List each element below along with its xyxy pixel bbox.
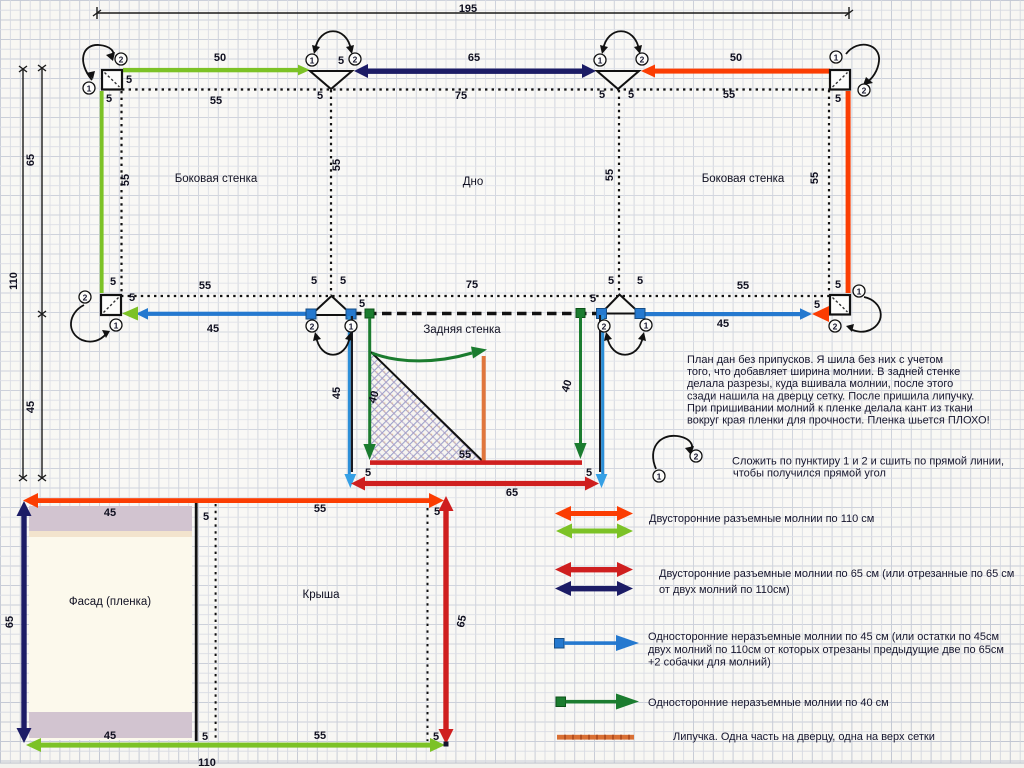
svg-text:65: 65 — [4, 616, 16, 628]
svg-text:5: 5 — [338, 55, 344, 67]
svg-text:5: 5 — [434, 506, 440, 518]
svg-text:2: 2 — [310, 322, 315, 332]
svg-text:делала разрезы, куда вшивала м: делала разрезы, куда вшивала молнии, пос… — [687, 378, 953, 390]
svg-text:План дан без припусков. Я шила: План дан без припусков. Я шила без них с… — [687, 354, 943, 366]
svg-text:55: 55 — [459, 449, 471, 461]
svg-text:двух молний по 110см от которы: двух молний по 110см от которых отрезаны… — [648, 644, 1004, 656]
svg-text:Крыша: Крыша — [303, 589, 341, 601]
svg-text:55: 55 — [314, 730, 326, 742]
svg-text:2: 2 — [862, 86, 867, 96]
svg-text:55: 55 — [199, 280, 211, 292]
svg-text:65: 65 — [455, 614, 469, 628]
svg-text:2: 2 — [833, 322, 838, 332]
svg-text:1: 1 — [349, 322, 354, 332]
svg-text:5: 5 — [599, 89, 605, 101]
svg-text:2: 2 — [119, 55, 124, 65]
svg-text:5: 5 — [608, 275, 614, 287]
svg-text:45: 45 — [104, 730, 116, 742]
svg-text:55: 55 — [809, 172, 821, 184]
svg-text:75: 75 — [466, 279, 478, 291]
svg-text:2: 2 — [353, 55, 358, 65]
svg-text:55: 55 — [210, 95, 222, 107]
svg-text:Фасад (пленка): Фасад (пленка) — [69, 596, 151, 608]
svg-text:2: 2 — [83, 293, 88, 303]
svg-text:Липучка. Одна часть на дверцу,: Липучка. Одна часть на дверцу, одна на в… — [673, 731, 935, 743]
svg-text:Боковая стенка: Боковая стенка — [702, 173, 785, 185]
svg-text:5: 5 — [835, 93, 841, 105]
svg-text:1: 1 — [857, 287, 862, 297]
svg-text:1: 1 — [644, 321, 649, 331]
svg-text:5: 5 — [317, 90, 323, 102]
svg-text:1: 1 — [657, 472, 662, 482]
svg-text:45: 45 — [717, 318, 729, 330]
svg-text:65: 65 — [468, 52, 480, 64]
svg-text:110: 110 — [8, 272, 20, 290]
svg-text:5: 5 — [340, 275, 346, 287]
svg-text:65: 65 — [506, 487, 518, 499]
svg-text:50: 50 — [214, 52, 226, 64]
svg-text:Двусторонние разъемные молнии: Двусторонние разъемные молнии по 110 см — [649, 513, 874, 525]
svg-text:45: 45 — [25, 401, 37, 413]
svg-text:5: 5 — [628, 89, 634, 101]
svg-text:55: 55 — [314, 503, 326, 515]
svg-text:2: 2 — [602, 322, 607, 332]
svg-text:5: 5 — [359, 298, 365, 310]
svg-text:1: 1 — [598, 56, 603, 66]
svg-text:того, что добавляет ширина мол: того, что добавляет ширина молнии. В зад… — [687, 366, 960, 378]
svg-text:+2 собачки для молний): +2 собачки для молний) — [648, 657, 771, 669]
svg-text:5: 5 — [202, 731, 208, 743]
svg-text:50: 50 — [730, 52, 742, 64]
svg-text:5: 5 — [586, 467, 592, 479]
svg-text:5: 5 — [637, 275, 643, 287]
svg-text:При пришивании молний к пленке: При пришивании молний к пленке делала ка… — [687, 403, 973, 415]
svg-text:75: 75 — [455, 90, 467, 102]
svg-text:чтобы получился прямой угол: чтобы получился прямой угол — [733, 468, 886, 480]
svg-text:1: 1 — [310, 56, 315, 66]
svg-text:45: 45 — [331, 387, 343, 399]
svg-text:Сложить по пунктиру 1 и 2 и сш: Сложить по пунктиру 1 и 2 и сшить по пря… — [732, 456, 1004, 468]
svg-text:сзади нашила на дверцу сетку.: сзади нашила на дверцу сетку. После приш… — [687, 391, 974, 403]
svg-text:5: 5 — [126, 74, 132, 86]
svg-text:Двусторонние разъемные молнии: Двусторонние разъемные молнии по 65 см (… — [659, 568, 1014, 580]
svg-text:55: 55 — [723, 89, 735, 101]
svg-text:5: 5 — [203, 511, 209, 523]
svg-text:45: 45 — [104, 507, 116, 519]
svg-text:2: 2 — [640, 55, 645, 65]
svg-text:2: 2 — [694, 452, 699, 462]
svg-text:от двух молний по 110см): от двух молний по 110см) — [659, 584, 790, 596]
svg-text:5: 5 — [110, 276, 116, 288]
svg-text:1: 1 — [834, 53, 839, 63]
svg-text:55: 55 — [331, 159, 343, 171]
svg-text:Односторонние неразъемные молн: Односторонние неразъемные молнии по 45 с… — [648, 631, 999, 643]
svg-text:55: 55 — [604, 169, 616, 181]
svg-text:5: 5 — [433, 731, 439, 743]
svg-text:вокруг края пленки для прочнос: вокруг края пленки для прочности. Пленка… — [687, 415, 990, 427]
svg-text:Односторонние неразъемные молн: Односторонние неразъемные молнии по 40 с… — [648, 697, 889, 709]
svg-text:5: 5 — [106, 93, 112, 105]
svg-text:Задняя стенка: Задняя стенка — [423, 324, 501, 336]
svg-text:5: 5 — [835, 279, 841, 291]
svg-text:1: 1 — [114, 321, 119, 331]
svg-text:Боковая стенка: Боковая стенка — [175, 173, 258, 185]
svg-text:45: 45 — [207, 323, 219, 335]
svg-text:195: 195 — [459, 3, 477, 15]
svg-text:5: 5 — [365, 467, 371, 479]
svg-text:Дно: Дно — [463, 176, 484, 188]
svg-text:65: 65 — [25, 154, 37, 166]
svg-text:5: 5 — [814, 299, 820, 311]
svg-text:5: 5 — [590, 293, 596, 305]
svg-text:55: 55 — [120, 174, 132, 186]
svg-text:110: 110 — [198, 757, 216, 768]
svg-text:55: 55 — [737, 280, 749, 292]
svg-text:5: 5 — [311, 275, 317, 287]
svg-text:1: 1 — [87, 84, 92, 94]
svg-text:5: 5 — [129, 292, 135, 304]
